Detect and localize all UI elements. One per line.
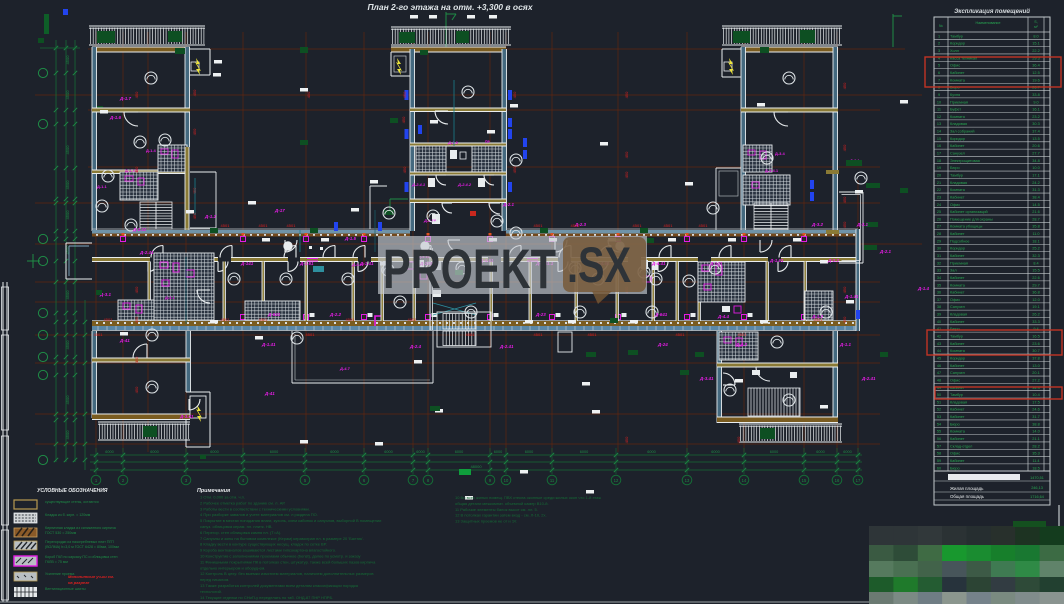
svg-text:Комната: Комната — [950, 430, 966, 434]
svg-text:450: 450 — [134, 166, 139, 173]
svg-text:Кабинет: Кабинет — [950, 232, 965, 236]
svg-text:ГОСТ 530 = 250мм: ГОСТ 530 = 250мм — [45, 531, 77, 535]
svg-text:существующие стены, остаются: существующие стены, остаются — [45, 500, 99, 504]
svg-text:Подсобное: Подсобное — [950, 239, 970, 243]
svg-text:перед началом.: перед началом. — [200, 577, 229, 582]
svg-text:450: 450 — [624, 91, 629, 98]
svg-text:6000: 6000 — [770, 450, 778, 454]
svg-text:Комната: Комната — [950, 115, 966, 119]
svg-text:45: 45 — [937, 356, 941, 360]
svg-text:1: 1 — [938, 34, 940, 38]
svg-text:33.8: 33.8 — [1032, 93, 1039, 97]
svg-text:4501: 4501 — [221, 223, 231, 228]
svg-text:55: 55 — [937, 430, 941, 434]
svg-text:Кабинет: Кабинет — [950, 320, 965, 324]
svg-text:S,: S, — [1034, 20, 1037, 24]
svg-text:6000: 6000 — [580, 450, 588, 454]
svg-text:12.5: 12.5 — [1032, 71, 1039, 75]
svg-text:Кабинет: Кабинет — [950, 144, 965, 148]
svg-text:Офис: Офис — [950, 203, 960, 207]
svg-text:Комната: Комната — [950, 188, 966, 192]
svg-text:12 Контроль В цеху: без выемк: 12 Контроль В цеху: без выемки изъятием … — [200, 571, 374, 576]
svg-text:Электрощитовая: Электрощитовая — [950, 159, 980, 163]
svg-text:Жилая площадь: Жилая площадь — [950, 486, 984, 491]
svg-text:8.0: 8.0 — [1033, 34, 1038, 38]
svg-text:Д-3.2: Д-3.2 — [811, 222, 824, 227]
svg-text:30: 30 — [937, 247, 941, 251]
svg-text:46: 46 — [937, 364, 941, 368]
svg-text:12 В потолках гарантии зат: 12 В потолках гарантии затем вход - см. … — [455, 513, 547, 518]
svg-text:11.4: 11.4 — [1032, 459, 1039, 463]
svg-text:Д-2.2: Д-2.2 — [827, 258, 840, 263]
svg-text:Буфет: Буфет — [950, 108, 961, 112]
svg-text:13: 13 — [685, 478, 690, 483]
svg-text:Д-2.2: Д-2.2 — [329, 312, 342, 317]
svg-text:Тамбур: Тамбур — [950, 335, 963, 339]
svg-text:20.6: 20.6 — [1032, 144, 1039, 148]
svg-text:4500: 4500 — [65, 55, 70, 65]
svg-text:18.1: 18.1 — [1032, 239, 1039, 243]
svg-text:Тамбур: Тамбур — [950, 393, 963, 397]
svg-text:Санузел: Санузел — [950, 371, 965, 375]
svg-text:Кабинет организаций: Кабинет организаций — [950, 210, 988, 214]
svg-text:Д-3.1: Д-3.1 — [856, 222, 869, 227]
svg-text:Кабинет: Кабинет — [950, 408, 965, 412]
svg-text:Кладовая: Кладовая — [950, 122, 967, 126]
svg-text:Общая площадь: Общая площадь — [950, 494, 985, 499]
svg-text:Д-1.1: Д-1.1 — [839, 342, 852, 347]
svg-text:4501: 4501 — [221, 317, 231, 322]
svg-text:42: 42 — [937, 335, 941, 339]
svg-text:Монолитные уч-ки см.: Монолитные уч-ки см. — [68, 574, 114, 579]
svg-text:450: 450 — [736, 436, 741, 443]
svg-text:450: 450 — [842, 144, 847, 151]
svg-text:13.0: 13.0 — [1032, 364, 1039, 368]
svg-text:33: 33 — [937, 269, 941, 273]
svg-text:Д-17: Д-17 — [274, 208, 285, 213]
svg-text:31.7: 31.7 — [1032, 415, 1039, 419]
svg-text:6000: 6000 — [816, 450, 824, 454]
svg-text:4501: 4501 — [534, 332, 544, 337]
svg-text:Кухня: Кухня — [950, 93, 960, 97]
svg-text:Бюро: Бюро — [950, 166, 960, 170]
svg-text:Д-2.41: Д-2.41 — [139, 250, 154, 255]
svg-text:на разрезе: на разрезе — [68, 580, 90, 585]
svg-text:10: 10 — [937, 100, 941, 104]
svg-text:450: 450 — [842, 82, 847, 89]
svg-text:29: 29 — [937, 239, 941, 243]
svg-text:Д-2.1: Д-2.1 — [502, 202, 515, 207]
svg-text:35.8: 35.8 — [1032, 225, 1039, 229]
svg-text:36: 36 — [937, 291, 941, 295]
svg-text:16: 16 — [835, 478, 840, 483]
svg-text:17.1: 17.1 — [1032, 173, 1039, 177]
svg-text:450: 450 — [842, 286, 847, 293]
svg-text:15: 15 — [937, 137, 941, 141]
svg-text:6000: 6000 — [105, 450, 113, 454]
svg-text:Д-641: Д-641 — [654, 312, 668, 317]
svg-text:450: 450 — [512, 91, 517, 98]
svg-text:22.6: 22.6 — [1032, 276, 1039, 280]
svg-text:Кладовая: Кладовая — [950, 181, 967, 185]
svg-text:31.3: 31.3 — [1032, 188, 1039, 192]
svg-text:4501: 4501 — [571, 223, 581, 228]
svg-text:246,13: 246,13 — [1031, 486, 1043, 490]
svg-text:Приемная: Приемная — [950, 100, 968, 104]
svg-text:450: 450 — [402, 91, 407, 98]
svg-text:9 Короба вентканалов зашиваю: 9 Короба вентканалов зашиваются листами … — [200, 548, 336, 553]
svg-text:6000: 6000 — [330, 450, 338, 454]
svg-text:51: 51 — [937, 400, 941, 404]
svg-text:27.7: 27.7 — [1032, 152, 1039, 156]
svg-text:сануз. облицовка керам. пл. пл: сануз. облицовка керам. пл. плитк. НВ. — [200, 524, 273, 529]
svg-text:ГКЛВ = 75 мм: ГКЛВ = 75 мм — [45, 560, 68, 564]
svg-text:3 Работы вести в соответстви: 3 Работы вести в соответствии с техничес… — [200, 506, 310, 511]
svg-text:20.1: 20.1 — [1032, 371, 1039, 375]
svg-text:37: 37 — [937, 298, 941, 302]
svg-text:24.6: 24.6 — [1032, 408, 1039, 412]
svg-text:4501: 4501 — [534, 223, 544, 228]
svg-text:Кабинет: Кабинет — [950, 364, 965, 368]
svg-text:59: 59 — [937, 459, 941, 463]
svg-text:Кабинет: Кабинет — [950, 291, 965, 295]
svg-text:15.5: 15.5 — [1032, 269, 1039, 273]
svg-text:17: 17 — [856, 478, 861, 483]
svg-text:Зал собраний: Зал собраний — [950, 130, 974, 134]
svg-text:Кабинет: Кабинет — [950, 342, 965, 346]
svg-text:Кабинет: Кабинет — [950, 437, 965, 441]
svg-text:(ВОЛМА) h=3,0 м ГОСТ 6428 = 80: (ВОЛМА) h=3,0 м ГОСТ 6428 = 80мм, 100мм — [45, 545, 119, 549]
svg-text:Коридор: Коридор — [950, 247, 965, 251]
svg-text:Санузел: Санузел — [950, 305, 965, 309]
svg-text:Д-3.4: Д-3.4 — [775, 151, 786, 156]
svg-text:4500: 4500 — [65, 145, 70, 155]
svg-text:6000: 6000 — [416, 450, 424, 454]
svg-text:общая детали межкомнат. объе: общая детали межкомнат. объемной камер В… — [455, 501, 549, 506]
svg-text:10 Во всех жилых помещ. ПВХ: 10 Во всех жилых помещ. ПВХ стекла оконн… — [455, 495, 601, 500]
svg-text:450: 450 — [842, 221, 847, 228]
svg-text:6000: 6000 — [843, 450, 851, 454]
svg-text:1716,64: 1716,64 — [1030, 495, 1044, 499]
svg-text:4500: 4500 — [65, 430, 70, 440]
svg-text:Д-24: Д-24 — [657, 342, 668, 347]
svg-text:60: 60 — [937, 466, 941, 470]
svg-text:План 2-го этажа на отм. +3,300: План 2-го этажа на отм. +3,300 в осях — [367, 2, 533, 12]
svg-text:Д-3.4.1: Д-3.4.1 — [765, 168, 779, 173]
svg-text:10 Конструктив с заполнениями: 10 Конструктив с заполнениями проемами о… — [200, 554, 361, 559]
svg-text:Д-1.61: Д-1.61 — [769, 258, 784, 263]
svg-text:14.5: 14.5 — [1032, 203, 1039, 207]
svg-text:450: 450 — [134, 316, 139, 323]
svg-text:47: 47 — [937, 371, 941, 375]
svg-text:Коридор: Коридор — [950, 42, 965, 46]
svg-text:11: 11 — [550, 478, 555, 483]
svg-text:4501: 4501 — [94, 332, 104, 337]
svg-text:Комната убощицы: Комната убощицы — [950, 225, 983, 229]
svg-text:28.2: 28.2 — [1032, 444, 1039, 448]
svg-text:27.2: 27.2 — [1032, 378, 1039, 382]
svg-text:24: 24 — [937, 203, 941, 207]
svg-text:26.2: 26.2 — [1032, 313, 1039, 317]
svg-text:Д-3.41: Д-3.41 — [699, 376, 714, 381]
svg-text:Экспликация помещений: Экспликация помещений — [954, 8, 1030, 15]
svg-text:57: 57 — [937, 444, 941, 448]
svg-text:39: 39 — [937, 313, 941, 317]
svg-text:14: 14 — [742, 478, 747, 483]
svg-text:34: 34 — [937, 276, 941, 280]
svg-text:4500: 4500 — [65, 395, 70, 405]
svg-text:Д-1.61: Д-1.61 — [299, 261, 314, 266]
svg-text:5: 5 — [938, 64, 940, 68]
svg-text:7: 7 — [938, 78, 940, 82]
svg-text:5 Покрытие в местах попадани: 5 Покрытие в местах попадания влаги, кух… — [200, 518, 381, 523]
svg-text:Офис: Офис — [950, 298, 960, 302]
svg-text:4501: 4501 — [814, 317, 824, 322]
svg-text:11.0: 11.0 — [1032, 232, 1039, 236]
svg-text:Офис: Офис — [950, 452, 960, 456]
svg-text:4501: 4501 — [738, 332, 748, 337]
svg-text:4501: 4501 — [346, 317, 356, 322]
svg-text:29.7: 29.7 — [1032, 283, 1039, 287]
svg-text:44: 44 — [937, 349, 941, 353]
svg-text:12: 12 — [614, 478, 619, 483]
svg-text:58: 58 — [937, 452, 941, 456]
svg-text:Коридор: Коридор — [950, 137, 965, 141]
svg-text:Тамбур: Тамбур — [950, 173, 963, 177]
svg-text:Д-41: Д-41 — [264, 391, 275, 396]
svg-text:Кладовая: Кладовая — [950, 400, 967, 404]
svg-text:31: 31 — [937, 254, 941, 258]
svg-text:28.7: 28.7 — [1032, 217, 1039, 221]
svg-text:Д-1.2: Д-1.2 — [204, 214, 217, 219]
svg-text:Холл: Холл — [950, 49, 959, 53]
svg-text:Кабинет: Кабинет — [950, 415, 965, 419]
svg-text:22: 22 — [937, 188, 941, 192]
svg-text:32.3: 32.3 — [1032, 254, 1039, 258]
svg-text:450: 450 — [842, 316, 847, 323]
svg-text:Д-4.7: Д-4.7 — [339, 366, 351, 371]
svg-text:18: 18 — [937, 159, 941, 163]
svg-text:4500: 4500 — [65, 90, 70, 100]
svg-text:Д-1.7: Д-1.7 — [119, 96, 132, 101]
svg-text:18.5: 18.5 — [1032, 466, 1039, 470]
svg-text:450: 450 — [134, 91, 139, 98]
svg-text:4501: 4501 — [259, 223, 269, 228]
svg-text:Д-1.41: Д-1.41 — [261, 342, 276, 347]
svg-text:4501: 4501 — [306, 332, 316, 337]
svg-text:4501: 4501 — [287, 223, 297, 228]
svg-text:48: 48 — [937, 378, 941, 382]
svg-text:35: 35 — [937, 283, 941, 287]
svg-text:16.1: 16.1 — [1032, 108, 1039, 112]
svg-text:Д-23: Д-23 — [535, 312, 546, 317]
svg-text:6000: 6000 — [150, 450, 158, 454]
svg-text:Д-1.41: Д-1.41 — [844, 294, 859, 299]
svg-text:Кабинет: Кабинет — [950, 459, 965, 463]
svg-text:11 Финишными покрытиями ПК в: 11 Финишными покрытиями ПК в потолках ст… — [200, 559, 376, 564]
svg-text:Д-3.41: Д-3.41 — [179, 414, 194, 419]
svg-text:Бюро: Бюро — [950, 422, 960, 426]
svg-text:8 Кладку вести в контуре сущ: 8 Кладку вести в контуре существующих не… — [200, 542, 327, 547]
svg-text:21.6: 21.6 — [1032, 210, 1039, 214]
svg-text:Кирпичная кладка из силикатног: Кирпичная кладка из силикатного кирпича — [45, 526, 116, 530]
svg-text:4501: 4501 — [466, 332, 476, 337]
svg-text:4500: 4500 — [65, 180, 70, 190]
svg-text:35.3: 35.3 — [1032, 452, 1039, 456]
svg-text:№: № — [939, 24, 943, 28]
svg-text:450: 450 — [192, 89, 197, 96]
svg-text:4501: 4501 — [259, 317, 269, 322]
svg-text:33.3: 33.3 — [1032, 320, 1039, 324]
svg-text:Д-4.1: Д-4.1 — [165, 295, 176, 300]
svg-text:Д-641: Д-641 — [267, 312, 281, 317]
svg-text:34.8: 34.8 — [1032, 159, 1039, 163]
svg-text:Вентиляционные шахты: Вентиляционные шахты — [45, 587, 86, 591]
svg-text:Д-141: Д-141 — [240, 261, 254, 266]
svg-text:450: 450 — [842, 196, 847, 203]
svg-text:Комната: Комната — [950, 349, 966, 353]
svg-text:10: 10 — [504, 478, 509, 483]
svg-text:PROEKT: PROEKT — [383, 237, 556, 300]
svg-text:36.8: 36.8 — [1032, 291, 1039, 295]
svg-text:450: 450 — [401, 116, 406, 123]
svg-text:23.2: 23.2 — [1032, 115, 1039, 119]
svg-text:Д-4.41: Д-4.41 — [651, 261, 666, 266]
svg-text:Д-1.4: Д-1.4 — [917, 286, 930, 291]
svg-text:4501: 4501 — [676, 332, 686, 337]
svg-text:6000: 6000 — [210, 450, 218, 454]
svg-text:Д-1.41: Д-1.41 — [359, 261, 374, 266]
svg-text:Д-2.41: Д-2.41 — [499, 344, 514, 349]
svg-text:40: 40 — [937, 320, 941, 324]
svg-text:6: 6 — [938, 71, 940, 75]
svg-text:Д-1.4: Д-1.4 — [146, 148, 157, 153]
svg-text:Зал: Зал — [950, 269, 957, 273]
svg-text:УСЛОВНЫЕ ОБОЗНАЧЕНИЯ: УСЛОВНЫЕ ОБОЗНАЧЕНИЯ — [37, 488, 108, 494]
svg-text:.SX: .SX — [567, 237, 631, 293]
svg-text:4500: 4500 — [65, 210, 70, 220]
svg-text:21.1: 21.1 — [1032, 437, 1039, 441]
svg-text:Бюро: Бюро — [950, 466, 960, 470]
svg-text:Комната: Комната — [950, 78, 966, 82]
svg-text:16: 16 — [937, 144, 941, 148]
svg-text:53: 53 — [937, 415, 941, 419]
svg-text:450: 450 — [192, 212, 197, 219]
svg-text:37.8: 37.8 — [1032, 356, 1039, 360]
svg-text:отдельно интерьером и оборуд-е: отдельно интерьером и оборуд-ем. — [200, 565, 265, 570]
svg-text:25.2: 25.2 — [1032, 247, 1039, 251]
svg-text:4500: 4500 — [65, 290, 70, 300]
svg-text:20: 20 — [937, 173, 941, 177]
svg-text:Приемная: Приемная — [950, 261, 968, 265]
svg-text:14 Текущие отделки по СНиП-у: 14 Текущие отделки по СНиП-у переделать … — [200, 595, 333, 600]
svg-text:Д-41: Д-41 — [119, 338, 130, 343]
svg-text:Д-2.4.2: Д-2.4.2 — [457, 182, 472, 187]
svg-text:Комната: Комната — [950, 283, 966, 287]
svg-text:38: 38 — [937, 305, 941, 309]
svg-text:Офис: Офис — [950, 64, 960, 68]
svg-text:27: 27 — [937, 225, 941, 229]
svg-text:30.3: 30.3 — [1032, 122, 1039, 126]
svg-text:6000: 6000 — [270, 450, 278, 454]
svg-text:Тамбур: Тамбур — [950, 34, 963, 38]
svg-text:15.1: 15.1 — [1032, 42, 1039, 46]
svg-text:Д-4.4: Д-4.4 — [717, 314, 730, 319]
svg-text:Д-2.41: Д-2.41 — [861, 376, 876, 381]
svg-text:14: 14 — [937, 130, 941, 134]
svg-text:Санузел: Санузел — [950, 152, 965, 156]
svg-text:ПР: ПР — [485, 140, 491, 144]
svg-text:10.4: 10.4 — [1032, 393, 1039, 397]
svg-text:13: 13 — [937, 122, 941, 126]
svg-text:36.4: 36.4 — [1032, 64, 1039, 68]
svg-text:11: 11 — [937, 108, 941, 112]
svg-text:17: 17 — [937, 152, 941, 156]
svg-text:56: 56 — [937, 437, 941, 441]
svg-text:Помещение для охраны: Помещение для охраны — [950, 217, 993, 221]
svg-text:52: 52 — [937, 408, 941, 412]
svg-text:4501: 4501 — [664, 223, 674, 228]
svg-text:Кабинет: Кабинет — [950, 276, 965, 280]
svg-text:Д-2.4: Д-2.4 — [409, 344, 422, 349]
svg-text:13 Также разработка контролей: 13 Также разработка контролей документам… — [200, 583, 359, 588]
svg-text:4 При разборке завалов и уче: 4 При разборке завалов и учете материало… — [200, 512, 318, 517]
svg-text:22.2: 22.2 — [1032, 49, 1039, 53]
svg-text:38.8: 38.8 — [1032, 422, 1039, 426]
svg-text:4501: 4501 — [588, 332, 598, 337]
svg-text:19.1: 19.1 — [1032, 305, 1039, 309]
svg-text:450: 450 — [624, 151, 629, 158]
svg-text:7 Санузлы и зоны на бытовом: 7 Санузлы и зоны на бытовом комплексе (К… — [200, 536, 364, 541]
svg-text:24.2: 24.2 — [1032, 181, 1039, 185]
svg-text:Коридор: Коридор — [950, 356, 965, 360]
svg-text:54: 54 — [937, 422, 941, 426]
svg-text:450: 450 — [192, 187, 197, 194]
svg-text:Перегородки из пазогребневых п: Перегородки из пазогребневых плит ПГП — [45, 540, 114, 544]
svg-text:23: 23 — [937, 195, 941, 199]
svg-text:Д-1.6: Д-1.6 — [109, 115, 122, 120]
svg-text:2 Рабочее отметка работ по з: 2 Рабочее отметка работ по зданию см. л.… — [200, 500, 285, 505]
svg-text:1 Отм. 0,000 за отм. ч.п.: 1 Отм. 0,000 за отм. ч.п. — [200, 495, 245, 500]
svg-text:Кладовая: Кладовая — [950, 313, 967, 317]
svg-text:6000: 6000 — [711, 450, 719, 454]
svg-text:450: 450 — [192, 128, 197, 135]
svg-text:3: 3 — [938, 49, 940, 53]
svg-text:4501: 4501 — [104, 317, 114, 322]
svg-text:9: 9 — [938, 93, 940, 97]
svg-text:Короб ГКЛ по каркасу ПС и обли: Короб ГКЛ по каркасу ПС и облицовка стен — [45, 555, 118, 559]
svg-text:16.5: 16.5 — [1032, 335, 1039, 339]
svg-text:Склад-отдел: Склад-отдел — [950, 444, 972, 448]
svg-text:Д-1.1: Д-1.1 — [97, 184, 108, 189]
svg-text:9.0: 9.0 — [1033, 100, 1038, 104]
svg-text:43: 43 — [937, 342, 941, 346]
svg-text:450: 450 — [134, 286, 139, 293]
svg-text:4501: 4501 — [699, 223, 709, 228]
svg-text:25: 25 — [937, 210, 941, 214]
svg-text:6000: 6000 — [455, 450, 463, 454]
svg-text:Д-2.11: Д-2.11 — [132, 227, 147, 232]
svg-text:450: 450 — [512, 166, 517, 173]
svg-text:Д-2.4.1: Д-2.4.1 — [411, 182, 426, 187]
svg-text:Кабинет: Кабинет — [950, 254, 965, 258]
svg-text:13 Защитных проемов не от: 13 Защитных проемов не от и Эт. — [455, 519, 517, 524]
svg-text:450: 450 — [624, 436, 629, 443]
svg-text:6000: 6000 — [647, 450, 655, 454]
svg-text:6000: 6000 — [384, 450, 392, 454]
svg-text:28: 28 — [937, 232, 941, 236]
svg-text:Офис: Офис — [950, 378, 960, 382]
